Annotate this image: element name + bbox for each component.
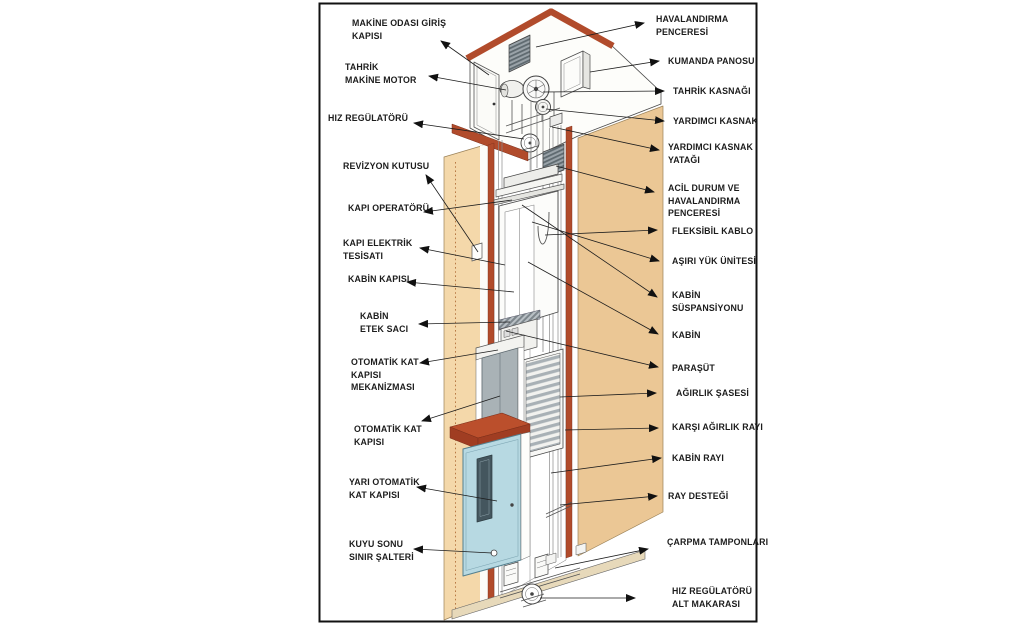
label-kabin-kapisi: KABİN KAPISI: [348, 273, 409, 286]
label-yari-otomatik-kat-kapisi: YARI OTOMATİK KAT KAPISI: [349, 476, 420, 501]
label-tahrik-makine-motor: TAHRİK MAKİNE MOTOR: [345, 61, 417, 86]
buffer: [504, 562, 518, 586]
label-revizyon-kutusu: REVİZYON KUTUSU: [343, 160, 429, 173]
door-knob: [510, 503, 513, 506]
label-kapi-operatoru: KAPI OPERATÖRÜ: [348, 202, 429, 215]
elevator-shaft-illustration: [0, 0, 1024, 632]
elevator-diagram-page: MAKİNE ODASI GİRİŞ KAPISI TAHRİK MAKİNE …: [0, 0, 1024, 632]
label-kabin-suspansiyonu: KABİN SÜSPANSİYONU: [672, 289, 744, 314]
label-hiz-regulatoru-alt-makarasi: HIZ REGÜLATÖRÜ ALT MAKARASI: [672, 585, 752, 610]
door-window: [477, 455, 492, 522]
label-carpma-tamponlari: ÇARPMA TAMPONLARI: [667, 536, 768, 549]
label-parasut: PARAŞÜT: [672, 362, 715, 375]
label-tahrik-kasnagi: TAHRİK KASNAĞI: [673, 85, 751, 98]
label-kabin-etek-saci: KABİN ETEK SACI: [360, 310, 408, 335]
label-makine-odasi-giris-kapisi: MAKİNE ODASI GİRİŞ KAPISI: [352, 17, 446, 42]
label-havalandirma-penceresi: HAVALANDIRMA PENCERESİ: [656, 13, 728, 38]
label-asiri-yuk-unitesi: AŞIRI YÜK ÜNİTESİ: [672, 255, 756, 268]
label-karsi-agirlik-rayi: KARŞI AĞIRLIK RAYI: [672, 421, 763, 434]
label-ray-destegi: RAY DESTEĞİ: [668, 490, 728, 503]
label-otomatik-kat-kapisi: OTOMATİK KAT KAPISI: [354, 423, 422, 448]
label-kapi-elektrik-tesisati: KAPI ELEKTRİK TESİSATI: [343, 237, 412, 262]
label-kuyu-sonu-sinir-salteri: KUYU SONU SINIR ŞALTERİ: [349, 538, 414, 563]
label-kabin-rayi: KABİN RAYI: [672, 452, 724, 465]
label-fleksibil-kablo: FLEKSİBİL KABLO: [672, 225, 753, 238]
safety-gear: [504, 330, 510, 338]
label-hiz-regulatoru: HIZ REGÜLATÖRÜ: [328, 112, 408, 125]
door-handle: [493, 103, 496, 106]
label-agirlik-sasesi: AĞIRLIK ŞASESİ: [676, 387, 749, 400]
label-otomatik-kat-kapisi-mekanizmasi: OTOMATİK KAT KAPISI MEKANİZMASI: [351, 356, 419, 394]
label-yardimci-kasnak: YARDIMCI KASNAK: [673, 115, 758, 128]
label-yardimci-kasnak-yatagi: YARDIMCI KASNAK YATAĞI: [668, 141, 753, 166]
label-kumanda-panosu: KUMANDA PANOSU: [668, 55, 755, 68]
label-kabin: KABİN: [672, 329, 701, 342]
label-acil-durum-ve-havalandirma-penceresi: ACİL DURUM VE HAVALANDIRMA PENCERESİ: [668, 182, 740, 220]
